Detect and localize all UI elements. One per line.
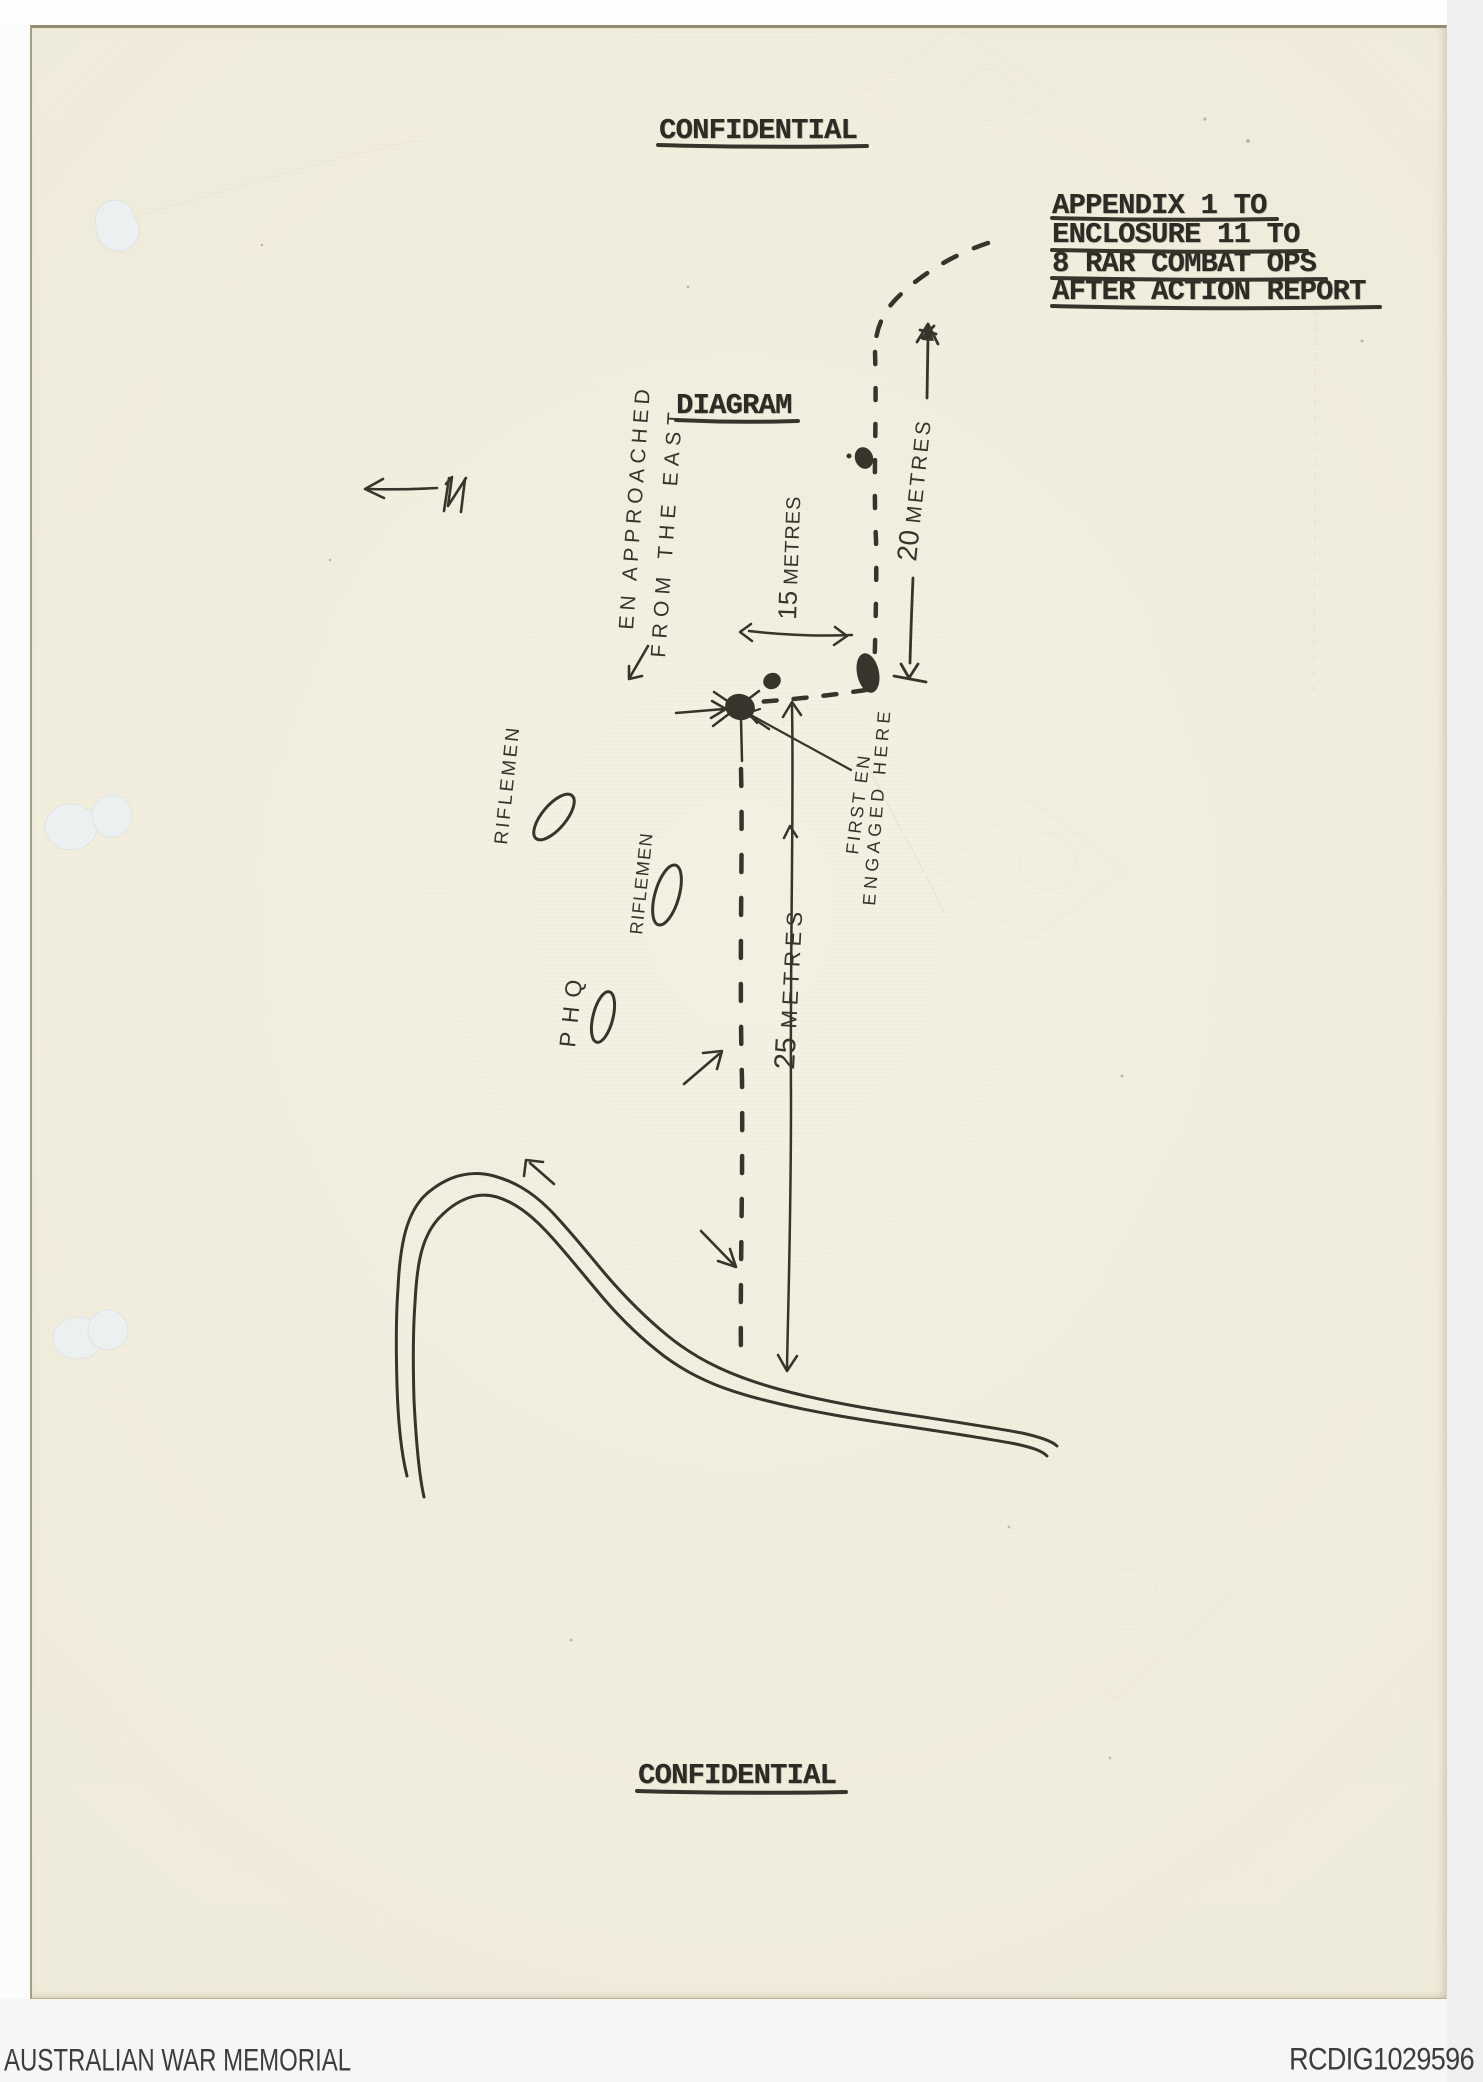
svg-text:PHQ: PHQ xyxy=(554,969,588,1048)
svg-text:RIFLEMEN: RIFLEMEN xyxy=(491,724,524,846)
svg-text:RIFLEMEN: RIFLEMEN xyxy=(626,831,657,936)
svg-text:15METRES: 15METRES xyxy=(772,495,806,620)
svg-text:EN APPROACHED: EN APPROACHED xyxy=(615,383,655,630)
svg-text:FROM THE EAST: FROM THE EAST xyxy=(647,405,688,658)
svg-text:25METRES: 25METRES xyxy=(769,906,809,1070)
svg-text:20METRES: 20METRES xyxy=(891,417,937,563)
